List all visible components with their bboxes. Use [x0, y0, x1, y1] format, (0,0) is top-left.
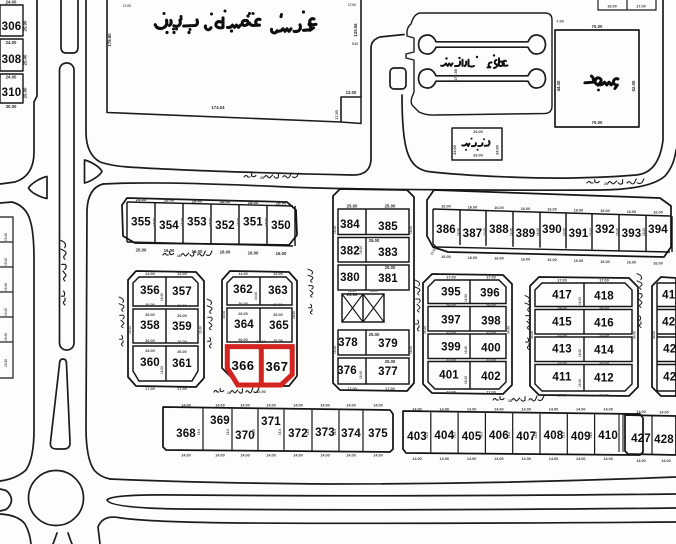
svg-text:17.00: 17.00 [123, 4, 131, 8]
svg-text:15.00: 15.00 [4, 283, 8, 291]
svg-text:390: 390 [542, 224, 562, 236]
svg-text:400: 400 [481, 343, 501, 355]
svg-text:16.0: 16.0 [333, 429, 337, 435]
svg-text:16.00: 16.00 [222, 311, 226, 319]
svg-text:16.00: 16.00 [128, 326, 132, 334]
svg-text:24.00: 24.00 [6, 75, 17, 80]
svg-text:44.00: 44.00 [556, 80, 561, 91]
svg-text:363: 363 [268, 285, 288, 297]
svg-text:403: 403 [407, 431, 427, 443]
svg-text:351: 351 [243, 217, 263, 229]
svg-text:14.00: 14.00 [240, 404, 250, 408]
svg-text:26.00: 26.00 [177, 340, 187, 344]
svg-text:14.00: 14.00 [549, 408, 559, 412]
svg-text:16.00: 16.00 [468, 205, 478, 209]
svg-text:14.00: 14.00 [659, 411, 669, 415]
svg-text:12.00: 12.00 [256, 340, 266, 344]
svg-text:17.00: 17.00 [348, 3, 356, 7]
svg-text:14.00: 14.00 [636, 459, 646, 463]
svg-text:26.00: 26.00 [273, 313, 283, 317]
svg-text:16.00: 16.00 [464, 376, 468, 384]
svg-text:16.00: 16.00 [441, 255, 451, 259]
svg-text:379: 379 [378, 338, 398, 350]
svg-text:16: 16 [227, 391, 231, 395]
svg-text:16.00: 16.00 [574, 208, 584, 212]
svg-text:16.0: 16.0 [278, 429, 282, 435]
svg-text:12.00: 12.00 [238, 272, 248, 276]
svg-text:14.00: 14.00 [549, 457, 559, 461]
svg-text:419: 419 [662, 290, 676, 302]
svg-text:16.00: 16.00 [653, 261, 663, 265]
svg-text:16.00: 16.00 [563, 228, 567, 236]
svg-text:16.00: 16.00 [164, 198, 175, 203]
svg-text:16.00: 16.00 [333, 226, 337, 234]
svg-text:412: 412 [594, 373, 614, 385]
svg-text:7.00: 7.00 [556, 20, 563, 24]
svg-text:14.00: 14.00 [636, 410, 646, 414]
svg-text:16.00: 16.00 [181, 218, 185, 226]
svg-text:25.00: 25.00 [599, 361, 609, 365]
svg-text:14.00: 14.00 [521, 457, 531, 461]
svg-text:16.0: 16.0 [425, 432, 429, 438]
svg-text:25.00: 25.00 [385, 265, 396, 270]
svg-text:16.00: 16.00 [510, 228, 514, 236]
svg-text:398: 398 [481, 316, 501, 328]
svg-text:353: 353 [187, 217, 207, 229]
svg-text:16.00: 16.00 [494, 206, 504, 210]
svg-text:12.00: 12.00 [177, 272, 187, 276]
svg-text:358: 358 [140, 320, 160, 332]
svg-text:25.00: 25.00 [486, 358, 496, 362]
svg-text:14.00: 14.00 [266, 404, 276, 408]
svg-text:360: 360 [140, 357, 160, 369]
svg-text:24.00: 24.00 [486, 303, 496, 307]
svg-text:409: 409 [571, 431, 591, 443]
svg-text:17.00: 17.00 [636, 5, 646, 9]
svg-text:383: 383 [378, 247, 398, 259]
svg-text:17.00: 17.00 [599, 279, 609, 283]
svg-text:17.00: 17.00 [347, 387, 357, 391]
svg-text:384: 384 [340, 219, 360, 231]
svg-text:414: 414 [594, 345, 614, 357]
svg-text:24.00: 24.00 [496, 145, 500, 155]
svg-text:26.00: 26.00 [238, 302, 248, 306]
svg-text:16.00: 16.00 [547, 258, 557, 262]
svg-text:369: 369 [210, 415, 230, 427]
svg-text:16.00: 16.00 [359, 371, 363, 379]
svg-text:25.00: 25.00 [446, 331, 456, 335]
svg-text:25.00: 25.00 [369, 238, 380, 243]
svg-text:16.00: 16.00 [160, 366, 164, 374]
svg-text:174.04: 174.04 [211, 105, 225, 110]
svg-text:16.00: 16.00 [642, 228, 646, 236]
svg-text:397: 397 [441, 315, 461, 327]
svg-text:421: 421 [662, 317, 676, 329]
svg-text:34.00: 34.00 [530, 331, 534, 339]
svg-text:14.00: 14.00 [346, 404, 356, 408]
svg-text:15.00: 15.00 [4, 258, 8, 266]
svg-text:16.00: 16.00 [600, 260, 610, 264]
svg-text:25.00: 25.00 [23, 87, 28, 98]
svg-text:26.00: 26.00 [273, 339, 283, 343]
svg-text:26.00: 26.00 [473, 154, 483, 158]
svg-text:25.00: 25.00 [369, 332, 380, 337]
svg-text:70.00: 70.00 [592, 24, 603, 29]
svg-text:26.00: 26.00 [145, 349, 155, 353]
svg-text:5.00: 5.00 [352, 42, 358, 46]
svg-text:16.00: 16.00 [521, 257, 531, 261]
svg-text:392: 392 [595, 224, 615, 236]
svg-text:396: 396 [480, 288, 500, 300]
svg-text:17.00: 17.00 [486, 276, 496, 280]
svg-text:17.00: 17.00 [557, 279, 567, 283]
svg-text:34.00: 34.00 [652, 331, 656, 339]
svg-text:417: 417 [552, 290, 572, 302]
svg-text:14.00: 14.00 [412, 408, 422, 412]
svg-text:411: 411 [552, 372, 572, 384]
svg-text:373: 373 [315, 427, 335, 439]
svg-text:14.00: 14.00 [346, 454, 356, 458]
svg-text:17.00: 17.00 [385, 387, 395, 391]
svg-text:16.00: 16.00 [600, 209, 610, 213]
svg-text:25.00: 25.00 [486, 331, 496, 335]
svg-text:34.00: 34.00 [507, 326, 511, 334]
svg-text:16.00: 16.00 [220, 199, 231, 204]
svg-text:13.00: 13.00 [346, 90, 357, 95]
svg-text:364: 364 [234, 319, 254, 331]
svg-text:16.00: 16.00 [468, 256, 478, 260]
svg-text:25.00: 25.00 [599, 334, 609, 338]
svg-text:16.00: 16.00 [627, 261, 637, 265]
svg-text:14.00: 14.00 [521, 408, 531, 412]
svg-text:70.00: 70.00 [592, 120, 603, 125]
svg-text:25.00: 25.00 [385, 359, 396, 364]
svg-text:17.00: 17.00 [177, 387, 187, 391]
svg-text:25.00: 25.00 [136, 248, 147, 253]
svg-text:25: 25 [604, 182, 608, 186]
svg-text:25.00: 25.00 [385, 204, 396, 209]
svg-text:16.0: 16.0 [534, 432, 538, 438]
svg-text:25.00: 25.00 [446, 358, 456, 362]
svg-text:352: 352 [215, 220, 235, 232]
svg-text:16.0: 16.0 [252, 429, 256, 435]
svg-text:14.00: 14.00 [576, 457, 586, 461]
svg-text:25.00: 25.00 [557, 361, 567, 365]
svg-text:306: 306 [2, 21, 22, 33]
svg-text:16.00: 16.00 [464, 346, 468, 354]
svg-text:135.58: 135.58 [353, 23, 358, 37]
svg-text:14.00: 14.00 [240, 454, 250, 458]
svg-text:175.58: 175.58 [454, 69, 458, 81]
svg-text:25.00: 25.00 [347, 204, 358, 209]
svg-text:16: 16 [508, 399, 512, 403]
svg-text:16.00: 16.00 [292, 311, 296, 319]
svg-text:16.00: 16.00 [209, 218, 213, 226]
svg-text:16.00: 16.00 [359, 246, 363, 254]
svg-text:14.00: 14.00 [320, 404, 330, 408]
svg-text:16.00: 16.00 [627, 210, 637, 214]
svg-text:16.00: 16.00 [589, 228, 593, 236]
svg-text:391: 391 [569, 228, 589, 240]
svg-text:14.00: 14.00 [181, 404, 191, 408]
svg-text:415: 415 [552, 317, 572, 329]
svg-text:378: 378 [338, 337, 358, 349]
svg-text:368: 368 [176, 428, 196, 440]
svg-text:16.00: 16.00 [494, 257, 504, 261]
svg-text:26.00: 26.00 [273, 303, 283, 307]
svg-text:377: 377 [378, 366, 398, 378]
svg-text:418: 418 [594, 291, 614, 303]
svg-text:14.00: 14.00 [467, 457, 477, 461]
svg-text:16.00: 16.00 [521, 207, 531, 211]
svg-text:416: 416 [594, 318, 614, 330]
svg-text:375: 375 [368, 428, 388, 440]
svg-text:361: 361 [172, 358, 192, 370]
svg-text:15.00: 15.00 [4, 233, 8, 241]
svg-text:14.00: 14.00 [661, 459, 671, 463]
svg-text:17.00: 17.00 [145, 387, 155, 391]
svg-text:16.00: 16.00 [254, 292, 258, 300]
svg-text:12.00: 12.00 [145, 272, 155, 276]
svg-text:24.00: 24.00 [6, 0, 17, 5]
svg-text:34.00: 34.00 [633, 331, 637, 339]
svg-text:14.00: 14.00 [373, 454, 383, 458]
svg-text:16.00: 16.00 [409, 346, 413, 354]
svg-text:26.00: 26.00 [145, 339, 155, 343]
svg-text:386: 386 [436, 224, 456, 236]
svg-text:16.00: 16.00 [248, 250, 259, 255]
svg-text:26.00: 26.00 [177, 314, 187, 318]
svg-text:394: 394 [648, 224, 668, 236]
svg-text:382: 382 [340, 246, 360, 258]
svg-text:16.00: 16.00 [578, 379, 582, 387]
svg-text:14.00: 14.00 [440, 408, 450, 412]
svg-text:34.00: 34.00 [423, 326, 427, 334]
svg-text:423: 423 [663, 344, 676, 356]
svg-text:413: 413 [552, 344, 572, 356]
svg-text:14.00: 14.00 [440, 457, 450, 461]
svg-text:25.00: 25.00 [136, 197, 147, 202]
svg-text:14.00: 14.00 [576, 408, 586, 412]
svg-text:24.00: 24.00 [599, 306, 609, 310]
svg-text:26.00: 26.00 [473, 130, 483, 134]
svg-text:26.00: 26.00 [177, 304, 187, 308]
svg-text:14.00: 14.00 [467, 408, 477, 412]
svg-text:350: 350 [271, 220, 291, 232]
svg-text:16.0: 16.0 [306, 429, 310, 435]
svg-text:17.50: 17.50 [335, 110, 339, 120]
svg-text:362: 362 [233, 284, 253, 296]
svg-text:14.00: 14.00 [320, 454, 330, 458]
svg-text:355: 355 [131, 217, 151, 229]
svg-text:15.00: 15.00 [4, 333, 8, 341]
svg-text:16.00: 16.00 [333, 346, 337, 354]
svg-text:16.0: 16.0 [357, 429, 361, 435]
svg-text:17.00: 17.00 [446, 391, 456, 395]
svg-text:14.00: 14.00 [215, 454, 225, 458]
svg-text:16.00: 16.00 [578, 349, 582, 357]
svg-text:25.00: 25.00 [557, 334, 567, 338]
svg-text:25.00: 25.00 [23, 54, 28, 65]
svg-text:389: 389 [516, 228, 536, 240]
svg-text:428: 428 [654, 434, 674, 446]
svg-text:371: 371 [261, 416, 281, 428]
svg-text:366: 366 [232, 358, 255, 373]
svg-text:14.00: 14.00 [293, 404, 303, 408]
svg-text:376: 376 [337, 365, 357, 377]
svg-text:16.00: 16.00 [547, 208, 557, 212]
svg-text:17.00: 17.00 [446, 276, 456, 280]
svg-text:16.00: 16.00 [160, 293, 164, 301]
svg-text:357: 357 [172, 286, 192, 298]
svg-text:365: 365 [269, 320, 289, 332]
svg-text:62.00: 62.00 [631, 80, 636, 91]
svg-text:16.00: 16.00 [457, 228, 461, 236]
svg-text:16.0: 16.0 [480, 432, 484, 438]
svg-text:16.0: 16.0 [197, 429, 201, 435]
svg-text:359: 359 [172, 321, 192, 333]
svg-text:354: 354 [159, 220, 179, 232]
svg-text:24.00: 24.00 [453, 145, 457, 155]
svg-text:380: 380 [340, 272, 360, 284]
svg-text:16.0: 16.0 [589, 432, 593, 438]
svg-text:385: 385 [378, 221, 398, 233]
svg-text:14.00: 14.00 [266, 454, 276, 458]
svg-text:16.00: 16.00 [199, 326, 203, 334]
svg-text:381: 381 [378, 273, 398, 285]
svg-text:16.00: 16.00 [653, 211, 663, 215]
svg-text:16.00: 16.00 [616, 228, 620, 236]
svg-text:12.00: 12.00 [273, 272, 283, 276]
svg-text:16.00: 16.00 [192, 198, 203, 203]
svg-text:25: 25 [260, 176, 264, 180]
svg-text:16.0: 16.0 [562, 432, 566, 438]
svg-text:16.0: 16.0 [507, 432, 511, 438]
svg-text:16: 16 [177, 254, 181, 258]
svg-text:406: 406 [489, 430, 509, 442]
svg-text:402: 402 [481, 371, 501, 383]
svg-text:13.00: 13.00 [370, 289, 378, 293]
svg-text:16.00: 16.00 [220, 250, 231, 255]
svg-text:16.00: 16.00 [153, 218, 157, 226]
svg-text:356: 356 [140, 285, 160, 297]
svg-text:14.00: 14.00 [181, 454, 191, 458]
svg-text:14.00: 14.00 [373, 404, 383, 408]
svg-text:372: 372 [288, 428, 308, 440]
svg-text:310: 310 [2, 87, 22, 99]
svg-text:367: 367 [266, 359, 289, 374]
svg-text:16.00: 16.00 [409, 226, 413, 234]
svg-text:17.00: 17.00 [599, 394, 609, 398]
svg-text:16.00: 16.00 [276, 251, 287, 256]
svg-text:15.00: 15.00 [4, 359, 8, 367]
svg-text:13.00: 13.00 [348, 289, 356, 293]
svg-text:427: 427 [631, 433, 651, 445]
svg-text:410: 410 [598, 430, 618, 442]
svg-text:425: 425 [663, 372, 676, 384]
svg-text:388: 388 [489, 224, 509, 236]
svg-text:17.00: 17.00 [557, 394, 567, 398]
svg-text:17.00: 17.00 [486, 391, 496, 395]
svg-text:16.00: 16.00 [441, 205, 451, 209]
svg-text:16.00: 16.00 [574, 259, 584, 263]
svg-text:16.00: 16.00 [464, 294, 468, 302]
svg-text:16.00: 16.00 [265, 218, 269, 226]
svg-text:16.0: 16.0 [226, 429, 230, 435]
svg-text:395: 395 [441, 287, 461, 299]
svg-text:16.00: 16.00 [536, 228, 540, 236]
svg-text:24.00: 24.00 [6, 40, 17, 45]
svg-text:26.00: 26.00 [238, 312, 248, 316]
svg-text:407: 407 [516, 431, 536, 443]
svg-text:16.00: 16.00 [607, 5, 617, 9]
svg-text:16.00: 16.00 [237, 218, 241, 226]
svg-text:401: 401 [439, 370, 459, 382]
svg-text:15.00: 15.00 [4, 308, 8, 316]
svg-text:14.00: 14.00 [494, 457, 504, 461]
svg-text:26.00: 26.00 [145, 303, 155, 307]
svg-text:24.00: 24.00 [446, 303, 456, 307]
svg-text:30.00: 30.00 [6, 104, 17, 109]
svg-text:14.00: 14.00 [494, 408, 504, 412]
svg-text:26.00: 26.00 [177, 350, 187, 354]
svg-text:14.00: 14.00 [215, 404, 225, 408]
svg-text:14.00: 14.00 [603, 457, 613, 461]
svg-text:25.00: 25.00 [23, 20, 28, 31]
svg-text:16.0: 16.0 [452, 432, 456, 438]
svg-text:16.00: 16.00 [578, 297, 582, 305]
svg-text:16.00: 16.00 [276, 201, 287, 206]
svg-text:399: 399 [441, 342, 461, 354]
svg-text:26.00: 26.00 [145, 313, 155, 317]
svg-text:393: 393 [622, 228, 642, 240]
svg-text:14.00: 14.00 [293, 454, 303, 458]
svg-text:308: 308 [2, 54, 22, 66]
svg-text:16.00: 16.00 [483, 228, 487, 236]
svg-text:16.00: 16.00 [248, 200, 259, 205]
svg-text:14.00: 14.00 [412, 457, 422, 461]
svg-text:24.00: 24.00 [557, 306, 567, 310]
svg-text:178.80: 178.80 [107, 33, 112, 47]
svg-text:387: 387 [463, 228, 483, 240]
svg-text:26.00: 26.00 [238, 338, 248, 342]
svg-text:14.00: 14.00 [603, 408, 613, 412]
